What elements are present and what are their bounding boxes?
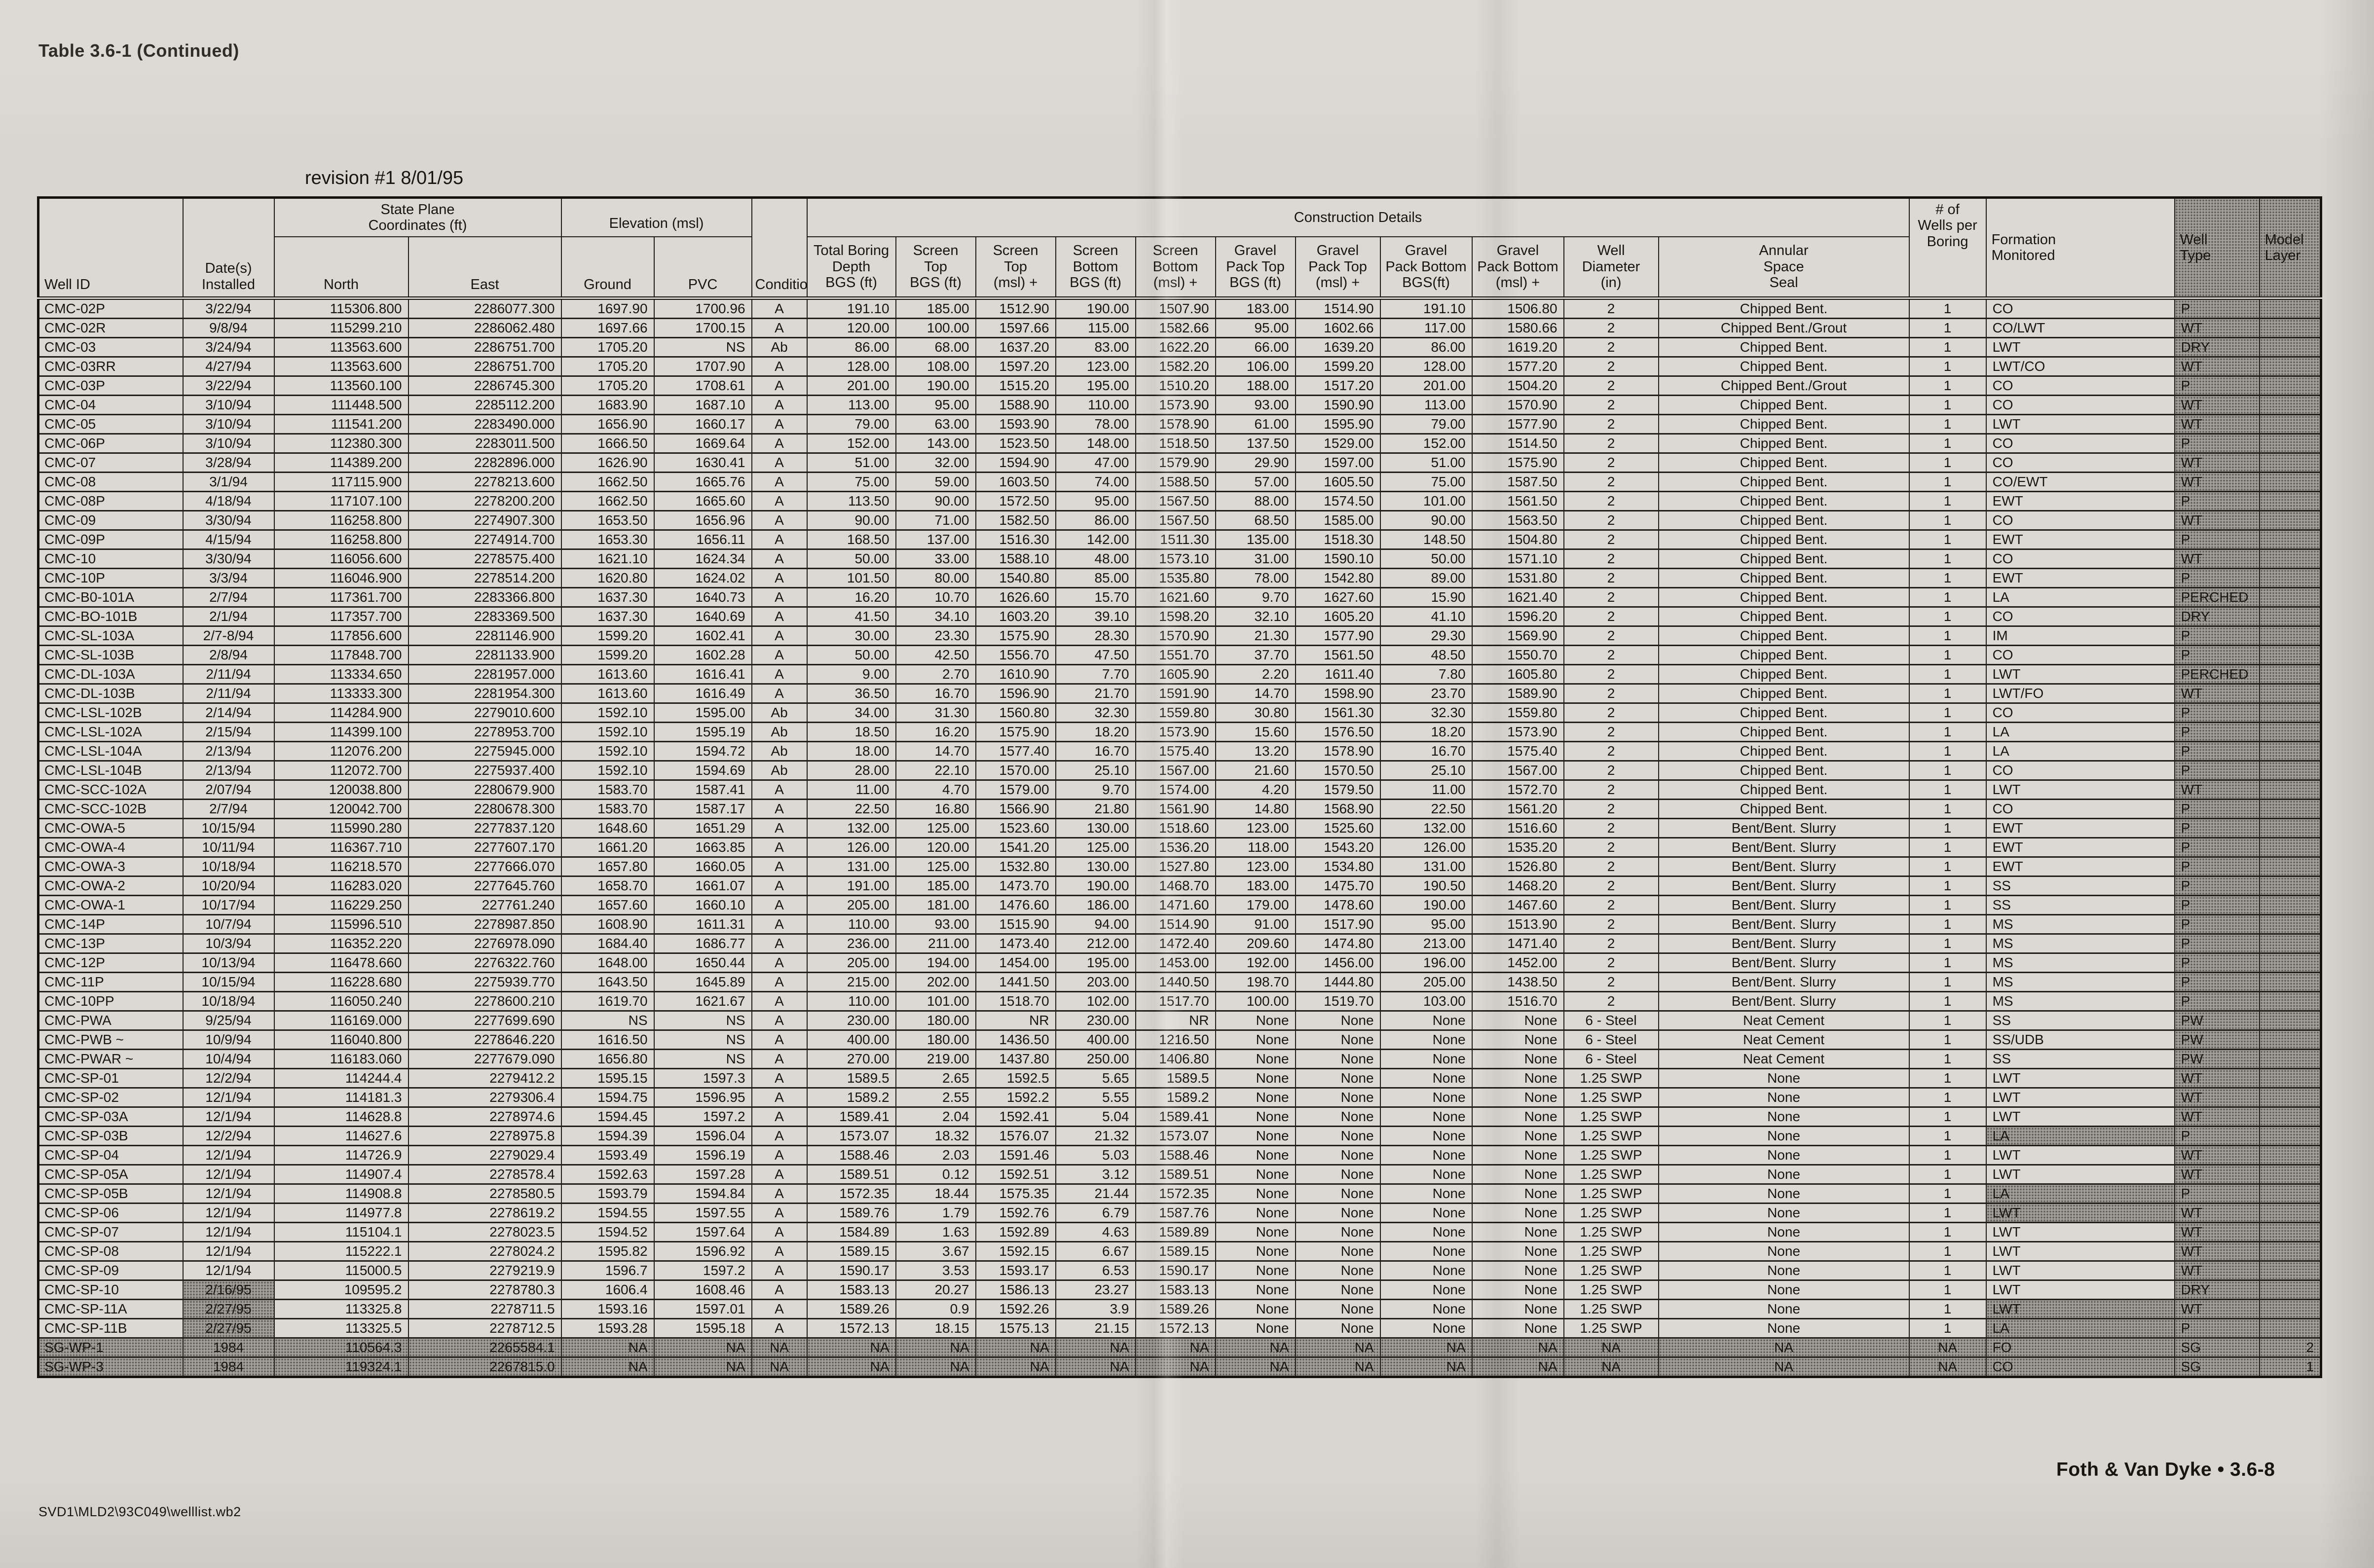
table-cell: 2/7-8/94 <box>183 626 274 646</box>
header-condition: Condition <box>752 198 807 298</box>
table-cell: 68.50 <box>1216 511 1296 530</box>
table-cell: 1661.07 <box>654 876 752 896</box>
table-cell: None <box>1472 1184 1564 1203</box>
table-cell: 18.20 <box>1380 723 1472 742</box>
table-cell: 114628.8 <box>274 1107 408 1127</box>
table-cell: 3/1/94 <box>183 473 274 492</box>
table-cell: 95.00 <box>1216 319 1296 338</box>
table-cell: NA <box>654 1338 752 1357</box>
table-cell: 1595.82 <box>561 1242 654 1261</box>
table-cell: 1468.20 <box>1472 876 1564 896</box>
table-cell: 1216.50 <box>1136 1030 1216 1050</box>
table-cell: 1626.60 <box>976 588 1056 607</box>
table-cell: 51.00 <box>1380 453 1472 473</box>
table-cell: A <box>752 415 807 434</box>
table-cell: 188.00 <box>1216 376 1296 396</box>
table-cell: 2278514.200 <box>408 569 561 588</box>
table-cell: LWT <box>1986 1165 2175 1184</box>
table-cell: LA <box>1986 723 2175 742</box>
table-cell: CO <box>1986 453 2175 473</box>
table-cell: Chipped Bent. <box>1659 780 1909 800</box>
table-cell: 3/28/94 <box>183 453 274 473</box>
table-cell <box>2260 1261 2321 1280</box>
table-cell: A <box>752 298 807 319</box>
table-cell: 1518.60 <box>1136 819 1216 838</box>
table-cell: None <box>1380 1146 1472 1165</box>
table-cell: 1589.2 <box>1136 1088 1216 1107</box>
table-cell: SS/UDB <box>1986 1030 2175 1050</box>
table-cell: A <box>752 1050 807 1069</box>
table-cell: 113563.600 <box>274 357 408 376</box>
header-gravel-pack-top-msl: Gravel Pack Top (msl) + <box>1296 237 1380 298</box>
table-cell <box>2260 338 2321 357</box>
table-header: Well ID Date(s) Installed State Plane Co… <box>38 198 2321 298</box>
table-cell: 6.53 <box>1056 1261 1136 1280</box>
table-cell: 1577.20 <box>1472 357 1564 376</box>
table-cell: 114181.3 <box>274 1088 408 1107</box>
table-cell: 1597.20 <box>976 357 1056 376</box>
table-cell: 1506.80 <box>1472 298 1564 319</box>
table-cell: None <box>1296 1146 1380 1165</box>
table-cell: 1593.28 <box>561 1319 654 1338</box>
table-cell: CMC-SP-01 <box>38 1069 183 1088</box>
table-cell: 2 <box>1564 857 1659 876</box>
table-cell: 113.00 <box>807 396 896 415</box>
table-cell: None <box>1296 1165 1380 1184</box>
table-cell: SS <box>1986 1050 2175 1069</box>
table-cell: 2281957.000 <box>408 665 561 684</box>
table-cell <box>2260 319 2321 338</box>
table-cell: 1467.60 <box>1472 896 1564 915</box>
table-cell: 1585.00 <box>1296 511 1380 530</box>
table-cell: 16.20 <box>807 588 896 607</box>
table-cell: 113.00 <box>1380 396 1472 415</box>
table-cell: 109595.2 <box>274 1280 408 1300</box>
table-cell: CMC-OWA-3 <box>38 857 183 876</box>
table-cell: 2278578.4 <box>408 1165 561 1184</box>
table-cell: 1597.64 <box>654 1223 752 1242</box>
table-cell: 1 <box>1909 973 1986 992</box>
table-cell: 209.60 <box>1216 934 1296 953</box>
table-cell: 2280679.900 <box>408 780 561 800</box>
table-cell: Chipped Bent. <box>1659 298 1909 319</box>
table-cell: LWT <box>1986 1223 2175 1242</box>
table-cell: 1 <box>1909 761 1986 780</box>
table-cell: 41.10 <box>1380 607 1472 626</box>
table-cell: CMC-SP-02 <box>38 1088 183 1107</box>
table-cell: 1597.2 <box>654 1107 752 1127</box>
table-cell: CMC-SL-103A <box>38 626 183 646</box>
table-cell: LWT <box>1986 415 2175 434</box>
table-cell: 190.50 <box>1380 876 1472 896</box>
table-cell: 1665.60 <box>654 492 752 511</box>
table-cell: 1512.90 <box>976 298 1056 319</box>
table-cell: 2283366.800 <box>408 588 561 607</box>
table-cell: 2278600.210 <box>408 992 561 1011</box>
table-cell: 1525.60 <box>1296 819 1380 838</box>
table-cell: 116228.680 <box>274 973 408 992</box>
table-cell: 88.00 <box>1216 492 1296 511</box>
table-cell: 103.00 <box>1380 992 1472 1011</box>
table-cell: None <box>1659 1261 1909 1280</box>
table-cell: 1665.76 <box>654 473 752 492</box>
table-cell: 195.00 <box>1056 376 1136 396</box>
table-cell: 1561.20 <box>1472 800 1564 819</box>
table-cell: 34.10 <box>896 607 976 626</box>
table-cell: 1 <box>1909 684 1986 703</box>
table-cell: 1575.90 <box>976 626 1056 646</box>
table-cell: 1608.46 <box>654 1280 752 1300</box>
table-cell: 21.44 <box>1056 1184 1136 1203</box>
table-cell: 1582.50 <box>976 511 1056 530</box>
table-cell: 29.90 <box>1216 453 1296 473</box>
table-cell: CMC-SCC-102A <box>38 780 183 800</box>
table-cell: 2.20 <box>1216 665 1296 684</box>
table-cell: 1.79 <box>896 1203 976 1223</box>
table-cell: CMC-OWA-5 <box>38 819 183 838</box>
table-cell: None <box>1472 1300 1564 1319</box>
table-cell <box>2260 934 2321 953</box>
table-cell: 6.67 <box>1056 1242 1136 1261</box>
table-cell: LWT <box>1986 1088 2175 1107</box>
table-cell: 1572.35 <box>807 1184 896 1203</box>
table-row: CMC-073/28/94114389.2002282896.0001626.9… <box>38 453 2321 473</box>
table-cell: LWT <box>1986 1300 2175 1319</box>
table-cell <box>2260 492 2321 511</box>
table-cell: 1504.20 <box>1472 376 1564 396</box>
table-cell: PW <box>2175 1030 2260 1050</box>
table-cell: A <box>752 1300 807 1319</box>
table-cell: A <box>752 780 807 800</box>
table-cell: None <box>1296 1203 1380 1223</box>
table-cell: 1534.80 <box>1296 857 1380 876</box>
table-cell: WT <box>2175 1088 2260 1107</box>
table-cell: 112076.200 <box>274 742 408 761</box>
table-cell: DRY <box>2175 1280 2260 1300</box>
table-cell: 112072.700 <box>274 761 408 780</box>
table-cell: 132.00 <box>807 819 896 838</box>
table-cell: 148.50 <box>1380 530 1472 549</box>
table-cell: 1517.70 <box>1136 992 1216 1011</box>
table-cell: 1456.00 <box>1296 953 1380 973</box>
table-cell: 1593.90 <box>976 415 1056 434</box>
table-cell: CMC-SCC-102B <box>38 800 183 819</box>
table-cell: P <box>2175 800 2260 819</box>
table-cell: Chipped Bent. <box>1659 626 1909 646</box>
table-cell: 57.00 <box>1216 473 1296 492</box>
table-cell: 1589.89 <box>1136 1223 1216 1242</box>
table-cell: NS <box>654 338 752 357</box>
table-cell: 1526.80 <box>1472 857 1564 876</box>
table-cell: 1 <box>1909 780 1986 800</box>
table-cell: 1 <box>1909 1261 1986 1280</box>
table-cell: 1650.44 <box>654 953 752 973</box>
document-number-footer: Foth & Van Dyke • 3.6-8 <box>2056 1459 2275 1481</box>
table-cell: 1592.10 <box>561 723 654 742</box>
table-cell: 1579.00 <box>976 780 1056 800</box>
table-cell: 1645.89 <box>654 973 752 992</box>
table-cell: 1597.66 <box>976 319 1056 338</box>
table-cell: NA <box>976 1357 1056 1377</box>
table-cell: WT <box>2175 1300 2260 1319</box>
table-cell: None <box>1216 1280 1296 1300</box>
table-cell: 1 <box>1909 319 1986 338</box>
table-row: CMC-SP-11B2/27/95113325.52278712.51593.2… <box>38 1319 2321 1338</box>
table-cell: 4.63 <box>1056 1223 1136 1242</box>
table-cell: 1572.70 <box>1472 780 1564 800</box>
table-cell: 75.00 <box>1380 473 1472 492</box>
table-cell: 2 <box>1564 953 1659 973</box>
table-cell: Bent/Bent. Slurry <box>1659 857 1909 876</box>
table-cell: 117.00 <box>1380 319 1472 338</box>
table-cell: 2281146.900 <box>408 626 561 646</box>
table-cell: 1597.00 <box>1296 453 1380 473</box>
table-cell <box>2260 896 2321 915</box>
table-cell: LWT <box>1986 780 2175 800</box>
table-cell: CMC-DL-103A <box>38 665 183 684</box>
table-cell: 1596.7 <box>561 1261 654 1280</box>
table-row: CMC-14P10/7/94115996.5102278987.8501608.… <box>38 915 2321 934</box>
table-cell: NA <box>752 1338 807 1357</box>
table-cell: 1504.80 <box>1472 530 1564 549</box>
table-cell: 1597.01 <box>654 1300 752 1319</box>
table-cell: SG <box>2175 1357 2260 1377</box>
table-cell: 74.00 <box>1056 473 1136 492</box>
table-cell: CMC-PWB ~ <box>38 1030 183 1050</box>
table-cell: 23.70 <box>1380 684 1472 703</box>
table-cell: 2 <box>1564 876 1659 896</box>
table-cell: 2 <box>1564 588 1659 607</box>
table-cell: Chipped Bent. <box>1659 396 1909 415</box>
table-cell: 1.25 SWP <box>1564 1319 1659 1338</box>
table-cell: 1596.04 <box>654 1127 752 1146</box>
table-cell <box>2260 857 2321 876</box>
table-cell: 12/1/94 <box>183 1242 274 1261</box>
table-cell: WT <box>2175 396 2260 415</box>
table-cell: 2 <box>1564 298 1659 319</box>
table-cell: None <box>1296 1184 1380 1203</box>
table-cell: 1619.70 <box>561 992 654 1011</box>
table-cell: 110.00 <box>807 992 896 1011</box>
table-cell: CMC-10 <box>38 549 183 569</box>
table-cell: 6 - Steel <box>1564 1011 1659 1030</box>
table-cell: 1 <box>1909 338 1986 357</box>
table-cell: DRY <box>2175 607 2260 626</box>
table-cell: 68.00 <box>896 338 976 357</box>
table-cell: 1602.41 <box>654 626 752 646</box>
table-cell: 78.00 <box>1216 569 1296 588</box>
table-cell: 2/7/94 <box>183 588 274 607</box>
table-cell: CMC-OWA-1 <box>38 896 183 915</box>
table-cell: 20.27 <box>896 1280 976 1300</box>
table-cell: None <box>1472 1050 1564 1069</box>
table-cell: 9.70 <box>1056 780 1136 800</box>
table-cell: A <box>752 838 807 857</box>
table-cell: 2 <box>1564 569 1659 588</box>
table-cell: 1603.20 <box>976 607 1056 626</box>
table-cell: 12/1/94 <box>183 1107 274 1127</box>
table-cell: 2/15/94 <box>183 723 274 742</box>
table-cell: 1578.90 <box>1296 742 1380 761</box>
table-cell: 1984 <box>183 1357 274 1377</box>
table-cell: 1 <box>1909 453 1986 473</box>
table-cell: 115.00 <box>1056 319 1136 338</box>
table-cell: 1596.90 <box>976 684 1056 703</box>
table-cell: CMC-02R <box>38 319 183 338</box>
table-cell <box>2260 742 2321 761</box>
table-cell: None <box>1216 1107 1296 1127</box>
table-cell: None <box>1472 1088 1564 1107</box>
table-cell: A <box>752 492 807 511</box>
table-cell: A <box>752 1165 807 1184</box>
table-cell: Chipped Bent. <box>1659 338 1909 357</box>
table-cell: 2 <box>1564 434 1659 453</box>
table-cell: CMC-PWA <box>38 1011 183 1030</box>
table-cell: 63.00 <box>896 415 976 434</box>
table-cell: 14.70 <box>1216 684 1296 703</box>
table-row: CMC-SP-05A12/1/94114907.42278578.41592.6… <box>38 1165 2321 1184</box>
table-row: CMC-SCC-102B2/7/94120042.7002280678.3001… <box>38 800 2321 819</box>
table-cell: A <box>752 453 807 473</box>
table-cell: A <box>752 1107 807 1127</box>
table-cell: 1630.41 <box>654 453 752 473</box>
table-cell: 1619.20 <box>1472 338 1564 357</box>
table-cell: 1 <box>1909 1011 1986 1030</box>
table-cell: 1560.80 <box>976 703 1056 723</box>
table-cell: None <box>1296 1280 1380 1300</box>
table-cell: CO <box>1986 549 2175 569</box>
table-cell: CMC-12P <box>38 953 183 973</box>
header-gravel-pack-bottom-msl: Gravel Pack Bottom (msl) + <box>1472 237 1564 298</box>
table-cell: Chipped Bent. <box>1659 357 1909 376</box>
table-cell: 185.00 <box>896 298 976 319</box>
table-cell: 1 <box>1909 992 1986 1011</box>
table-cell: 1 <box>1909 1300 1986 1319</box>
table-cell: 32.30 <box>1056 703 1136 723</box>
table-cell: None <box>1380 1127 1472 1146</box>
table-cell: CMC-10PP <box>38 992 183 1011</box>
table-cell: 1684.40 <box>561 934 654 953</box>
table-cell: 1597.28 <box>654 1165 752 1184</box>
table-cell <box>2260 838 2321 857</box>
table-cell: 2 <box>1564 319 1659 338</box>
table-cell: 94.00 <box>1056 915 1136 934</box>
table-cell: None <box>1296 1127 1380 1146</box>
table-cell: 115299.210 <box>274 319 408 338</box>
table-cell: Chipped Bent. <box>1659 723 1909 742</box>
table-cell: 112380.300 <box>274 434 408 453</box>
table-cell: 1.25 SWP <box>1564 1223 1659 1242</box>
table-cell: 1 <box>1909 549 1986 569</box>
table-cell: None <box>1216 1146 1296 1165</box>
table-cell: None <box>1472 1011 1564 1030</box>
table-cell: A <box>752 934 807 953</box>
table-cell: NA <box>976 1338 1056 1357</box>
table-cell: 1578.90 <box>1136 415 1216 434</box>
table-cell: 1595.90 <box>1296 415 1380 434</box>
table-cell <box>2260 434 2321 453</box>
table-cell: 11.00 <box>807 780 896 800</box>
table-cell: 1651.29 <box>654 819 752 838</box>
table-cell <box>2260 607 2321 626</box>
table-cell: 1648.60 <box>561 819 654 838</box>
table-cell: 1575.40 <box>1136 742 1216 761</box>
table-cell: 1 <box>1909 569 1986 588</box>
table-cell: None <box>1216 1184 1296 1203</box>
table-cell: 128.00 <box>1380 357 1472 376</box>
header-model-layer: Model Layer <box>2260 198 2321 298</box>
table-cell: 1592.10 <box>561 742 654 761</box>
table-cell: 2 <box>1564 819 1659 838</box>
table-row: CMC-OWA-310/18/94116218.5702277666.07016… <box>38 857 2321 876</box>
table-cell: WT <box>2175 511 2260 530</box>
table-cell: 2 <box>1564 357 1659 376</box>
table-cell: A <box>752 473 807 492</box>
table-cell: 1.25 SWP <box>1564 1146 1659 1165</box>
table-cell: 143.00 <box>896 434 976 453</box>
table-cell: 30.00 <box>807 626 896 646</box>
table-cell: MS <box>1986 934 2175 953</box>
table-cell: 180.00 <box>896 1030 976 1050</box>
table-cell: EWT <box>1986 819 2175 838</box>
table-cell: CMC-OWA-2 <box>38 876 183 896</box>
table-cell: 1576.07 <box>976 1127 1056 1146</box>
table-cell: SG-WP-1 <box>38 1338 183 1357</box>
table-cell: 9/25/94 <box>183 1011 274 1030</box>
table-cell: 2/13/94 <box>183 761 274 780</box>
table-cell: NA <box>1659 1338 1909 1357</box>
table-cell: 131.00 <box>1380 857 1472 876</box>
table-cell: 18.20 <box>1056 723 1136 742</box>
table-cell: 2278575.400 <box>408 549 561 569</box>
table-cell: CO <box>1986 800 2175 819</box>
table-cell: 1594.84 <box>654 1184 752 1203</box>
table-row: CMC-10PP10/18/94116050.2402278600.210161… <box>38 992 2321 1011</box>
table-cell: 116229.250 <box>274 896 408 915</box>
header-well-type: Well Type <box>2175 198 2260 298</box>
table-cell: EWT <box>1986 492 2175 511</box>
table-cell: Bent/Bent. Slurry <box>1659 953 1909 973</box>
table-cell: 1590.17 <box>807 1261 896 1280</box>
table-cell: 126.00 <box>807 838 896 857</box>
header-gravel-pack-bottom-bgs: Gravel Pack Bottom BGS(ft) <box>1380 237 1472 298</box>
table-cell: 18.50 <box>807 723 896 742</box>
table-cell: 1567.00 <box>1136 761 1216 780</box>
table-cell: 1 <box>1909 1088 1986 1107</box>
table-cell: 0.12 <box>896 1165 976 1184</box>
table-cell: 2 <box>1564 453 1659 473</box>
table-cell: 25.10 <box>1380 761 1472 780</box>
table-cell: 6 - Steel <box>1564 1050 1659 1069</box>
table-cell: 119324.1 <box>274 1357 408 1377</box>
table-cell: 2278580.5 <box>408 1184 561 1203</box>
table-cell: 1559.80 <box>1472 703 1564 723</box>
table-row: CMC-DL-103B2/11/94113333.3002281954.3001… <box>38 684 2321 703</box>
table-row: CMC-PWB ~10/9/94116040.8002278646.220161… <box>38 1030 2321 1050</box>
table-cell: 202.00 <box>896 973 976 992</box>
table-cell: 116040.800 <box>274 1030 408 1050</box>
table-cell: 1594.55 <box>561 1203 654 1223</box>
table-cell: None <box>1216 1030 1296 1050</box>
table-cell: 10/13/94 <box>183 953 274 973</box>
table-cell: A <box>752 915 807 934</box>
table-cell: Chipped Bent. <box>1659 473 1909 492</box>
table-cell <box>2260 800 2321 819</box>
table-cell: 1587.50 <box>1472 473 1564 492</box>
table-cell: 128.00 <box>807 357 896 376</box>
table-cell: 1583.70 <box>561 800 654 819</box>
table-cell: CMC-05 <box>38 415 183 434</box>
